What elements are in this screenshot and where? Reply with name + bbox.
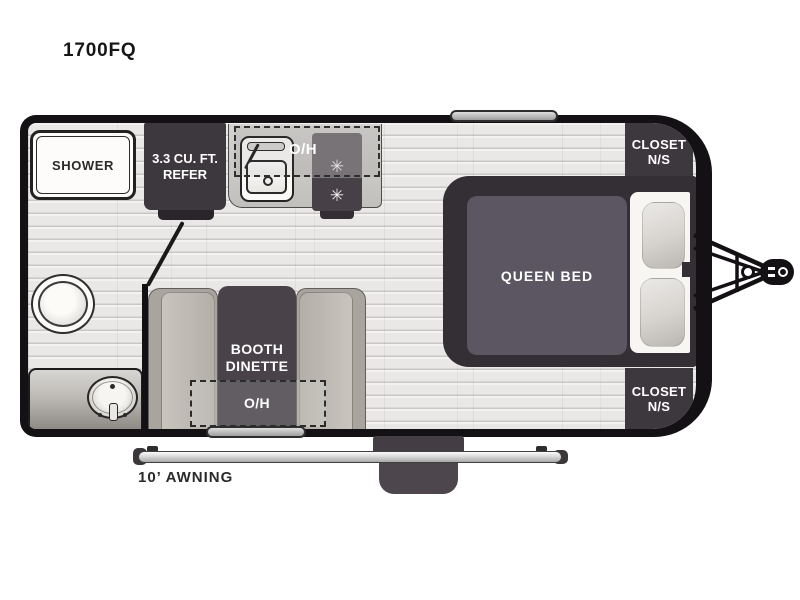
pillow xyxy=(642,202,685,269)
refrigerator-vent xyxy=(158,210,214,220)
dinette-label-line2: DINETTE xyxy=(218,358,296,375)
toilet xyxy=(31,274,95,334)
floor: SHOWER 3.3 CU. FT. REFER xyxy=(28,123,696,429)
queen-bed-label: QUEEN BED xyxy=(501,268,593,284)
queen-bed: QUEEN BED xyxy=(467,196,627,355)
knob-icon xyxy=(98,413,102,417)
faucet-handle-icon xyxy=(109,403,118,421)
dinette-label-line1: BOOTH xyxy=(218,341,296,358)
refrigerator-label-line2: REFER xyxy=(163,167,207,183)
closet-front-bottom: CLOSET N/S xyxy=(625,368,693,429)
dinette-overhead-cabinet xyxy=(190,380,326,427)
burner-icon: ✳ xyxy=(312,187,362,204)
awning-label: 10’ AWNING xyxy=(138,469,318,486)
closet-label-line2: N/S xyxy=(648,152,671,167)
stove-vent xyxy=(320,211,354,219)
vanity-sink xyxy=(87,376,138,419)
shower-label: SHOWER xyxy=(52,158,114,173)
kitchen-overhead-label: O/H xyxy=(280,141,326,158)
pillow-gap xyxy=(682,262,690,277)
shower: SHOWER xyxy=(30,130,136,200)
faucet-icon xyxy=(110,384,115,389)
refrigerator-label-line1: 3.3 CU. FT. xyxy=(152,151,218,167)
window-top xyxy=(450,110,558,122)
refrigerator: 3.3 CU. FT. REFER xyxy=(144,123,226,210)
window-bottom xyxy=(206,426,306,438)
hitch-icon xyxy=(690,225,800,325)
drain-icon xyxy=(263,176,273,186)
awning-bar xyxy=(138,451,562,463)
bathroom-door-swing xyxy=(146,221,185,287)
closet-label-line2: N/S xyxy=(648,399,671,414)
entry-step-lower xyxy=(379,458,458,494)
floorplan-page: 1700FQ SHOWER 3.3 CU. FT. xyxy=(0,0,800,600)
closet-front-top: CLOSET N/S xyxy=(625,123,693,180)
pillow-shelf xyxy=(630,192,690,353)
model-title: 1700FQ xyxy=(63,40,136,62)
bathroom-vanity xyxy=(28,368,143,429)
trailer-body: SHOWER 3.3 CU. FT. REFER xyxy=(20,115,712,437)
toilet-bowl xyxy=(38,281,88,327)
closet-label-line1: CLOSET xyxy=(632,137,687,152)
pillow xyxy=(640,278,685,347)
closet-label-line1: CLOSET xyxy=(632,384,687,399)
knob-icon xyxy=(123,413,127,417)
